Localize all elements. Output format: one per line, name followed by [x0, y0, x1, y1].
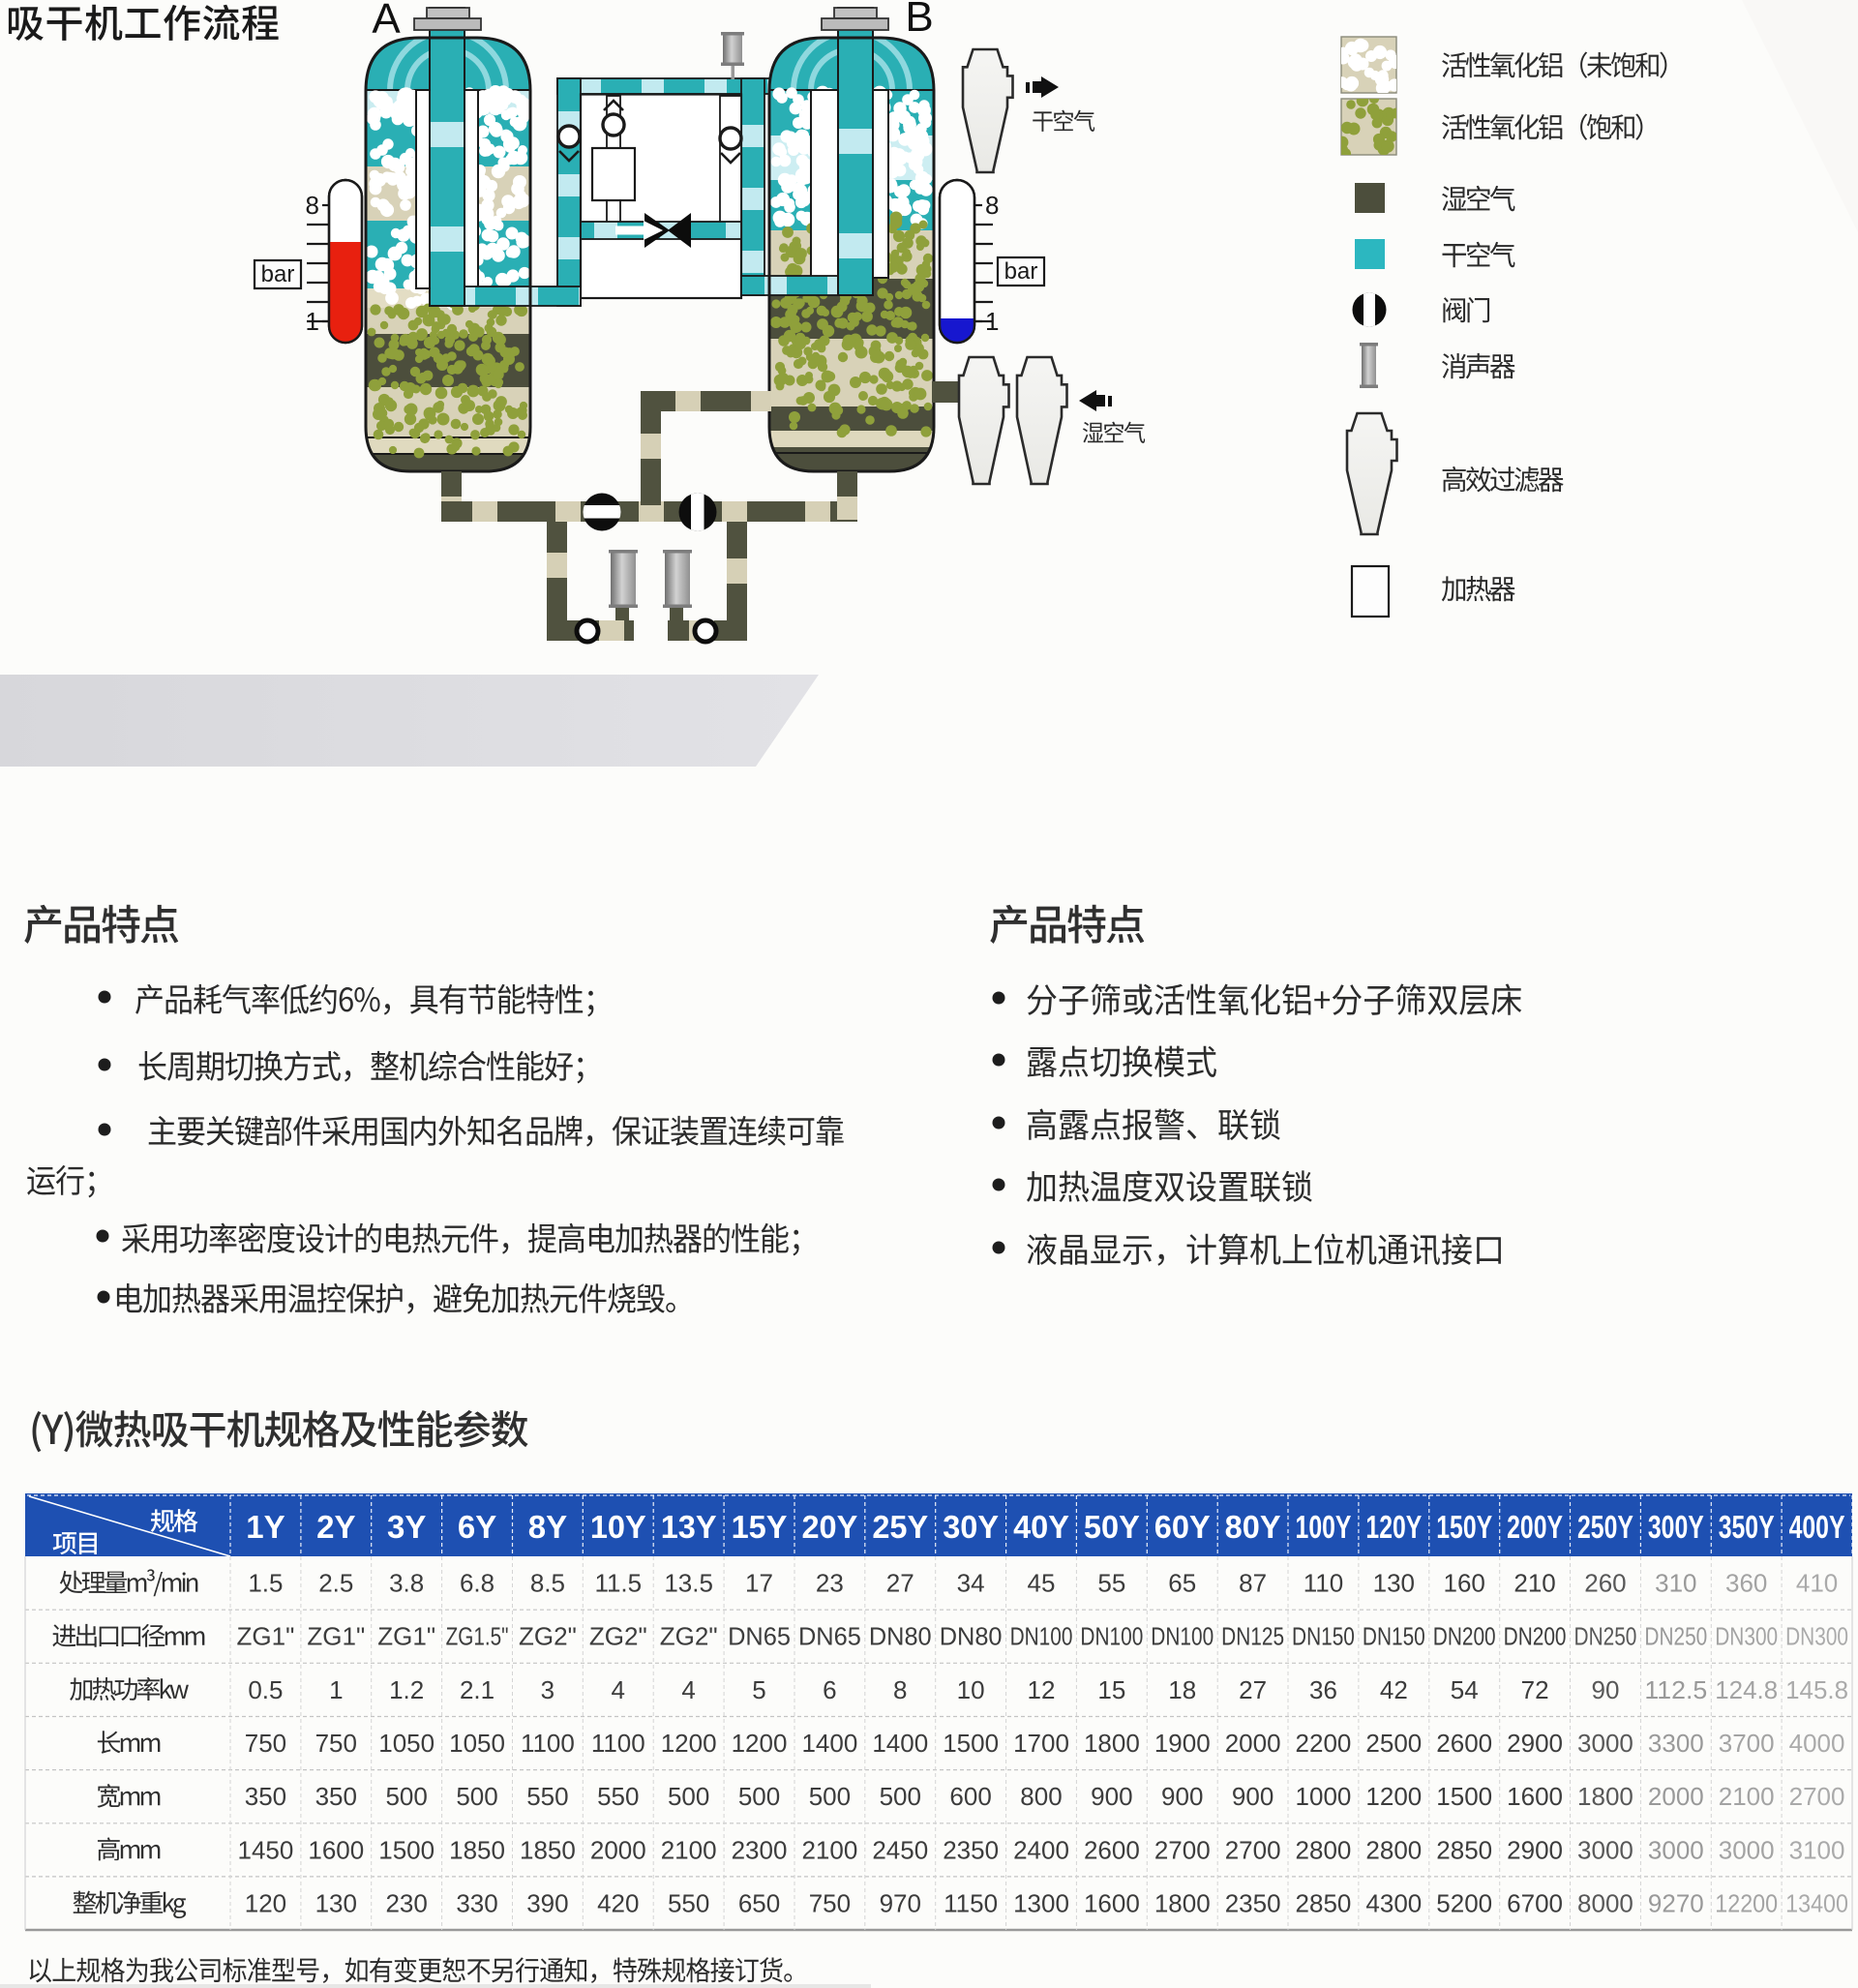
svg-text:3000: 3000 [1719, 1835, 1775, 1864]
svg-text:2600: 2600 [1084, 1835, 1140, 1864]
svg-text:60Y: 60Y [1154, 1509, 1211, 1545]
svg-text:1050: 1050 [378, 1729, 435, 1758]
svg-text:2.1: 2.1 [460, 1675, 494, 1704]
svg-text:DN200: DN200 [1504, 1622, 1567, 1651]
svg-text:2850: 2850 [1436, 1835, 1492, 1864]
svg-text:2800: 2800 [1296, 1835, 1352, 1864]
svg-text:5200: 5200 [1436, 1888, 1492, 1917]
svg-text:2900: 2900 [1507, 1729, 1563, 1758]
svg-text:6Y: 6Y [458, 1509, 496, 1545]
svg-text:DN250: DN250 [1644, 1622, 1707, 1651]
svg-text:2850: 2850 [1296, 1888, 1352, 1917]
svg-text:1900: 1900 [1154, 1729, 1211, 1758]
svg-text:bar: bar [1004, 258, 1038, 285]
svg-text:4300: 4300 [1365, 1888, 1422, 1917]
svg-text:ZG2": ZG2" [589, 1622, 647, 1651]
svg-text:DN100: DN100 [1080, 1622, 1143, 1651]
svg-text:310: 310 [1655, 1569, 1696, 1598]
svg-text:10: 10 [957, 1675, 985, 1704]
svg-text:1850: 1850 [520, 1835, 576, 1864]
svg-text:500: 500 [809, 1782, 851, 1811]
svg-text:1450: 1450 [238, 1835, 294, 1864]
svg-text:12: 12 [1028, 1675, 1056, 1704]
svg-text:50Y: 50Y [1084, 1509, 1140, 1545]
svg-text:500: 500 [668, 1782, 709, 1811]
svg-text:750: 750 [809, 1888, 851, 1917]
svg-text:1800: 1800 [1154, 1888, 1211, 1917]
svg-text:6.8: 6.8 [460, 1569, 494, 1598]
svg-text:4000: 4000 [1789, 1729, 1845, 1758]
svg-text:900: 900 [1091, 1782, 1132, 1811]
svg-text:2350: 2350 [943, 1835, 999, 1864]
svg-text:2100: 2100 [661, 1835, 717, 1864]
svg-text:1100: 1100 [591, 1729, 645, 1758]
svg-text:2.5: 2.5 [318, 1569, 353, 1598]
svg-text:5: 5 [752, 1675, 765, 1704]
svg-text:80Y: 80Y [1225, 1509, 1281, 1545]
svg-text:2500: 2500 [1365, 1729, 1422, 1758]
svg-text:2700: 2700 [1225, 1835, 1281, 1864]
svg-text:2800: 2800 [1365, 1835, 1422, 1864]
svg-text:1300: 1300 [1013, 1888, 1069, 1917]
svg-text:8Y: 8Y [528, 1509, 567, 1545]
svg-text:2450: 2450 [872, 1835, 928, 1864]
svg-text:550: 550 [526, 1782, 568, 1811]
svg-text:6: 6 [823, 1675, 836, 1704]
svg-text:DN100: DN100 [1151, 1622, 1214, 1651]
svg-text:DN250: DN250 [1574, 1622, 1637, 1651]
svg-text:2600: 2600 [1436, 1729, 1492, 1758]
svg-text:15: 15 [1097, 1675, 1125, 1704]
svg-text:160: 160 [1444, 1569, 1485, 1598]
svg-text:2000: 2000 [1225, 1729, 1281, 1758]
svg-text:130: 130 [1373, 1569, 1415, 1598]
svg-text:150Y: 150Y [1436, 1509, 1492, 1545]
svg-text:90: 90 [1591, 1675, 1619, 1704]
svg-text:1100: 1100 [521, 1729, 575, 1758]
svg-text:300Y: 300Y [1648, 1509, 1704, 1545]
svg-text:6700: 6700 [1507, 1888, 1563, 1917]
svg-text:3: 3 [541, 1675, 554, 1704]
svg-text:360: 360 [1725, 1569, 1767, 1598]
svg-text:DN80: DN80 [940, 1622, 1003, 1651]
svg-text:900: 900 [1161, 1782, 1203, 1811]
svg-text:1400: 1400 [872, 1729, 928, 1758]
svg-text:2900: 2900 [1507, 1835, 1563, 1864]
svg-text:350: 350 [315, 1782, 357, 1811]
svg-text:23: 23 [816, 1569, 844, 1598]
svg-text:1600: 1600 [1084, 1888, 1140, 1917]
svg-text:4: 4 [681, 1675, 695, 1704]
svg-text:20Y: 20Y [801, 1509, 857, 1545]
svg-text:420: 420 [597, 1888, 639, 1917]
svg-text:390: 390 [526, 1888, 568, 1917]
svg-text:3000: 3000 [1577, 1835, 1633, 1864]
svg-text:124.8: 124.8 [1715, 1675, 1778, 1704]
svg-text:500: 500 [385, 1782, 427, 1811]
svg-text:27: 27 [1239, 1675, 1267, 1704]
svg-text:11.5: 11.5 [594, 1569, 642, 1598]
svg-text:145.8: 145.8 [1785, 1675, 1848, 1704]
svg-text:2100: 2100 [801, 1835, 857, 1864]
svg-text:3000: 3000 [1648, 1835, 1704, 1864]
svg-text:2700: 2700 [1154, 1835, 1211, 1864]
svg-text:1: 1 [985, 307, 999, 336]
svg-text:55: 55 [1097, 1569, 1125, 1598]
svg-text:1800: 1800 [1577, 1782, 1633, 1811]
svg-text:15Y: 15Y [732, 1509, 788, 1545]
svg-text:1500: 1500 [943, 1729, 999, 1758]
svg-text:10Y: 10Y [590, 1509, 646, 1545]
svg-text:13.5: 13.5 [664, 1569, 713, 1598]
svg-text:A: A [372, 0, 401, 43]
svg-text:750: 750 [315, 1729, 357, 1758]
svg-text:1600: 1600 [308, 1835, 364, 1864]
svg-text:1800: 1800 [1084, 1729, 1140, 1758]
svg-text:1500: 1500 [1436, 1782, 1492, 1811]
svg-text:25Y: 25Y [872, 1509, 928, 1545]
svg-text:650: 650 [738, 1888, 780, 1917]
svg-text:1050: 1050 [449, 1729, 505, 1758]
svg-text:2Y: 2Y [316, 1509, 355, 1545]
svg-text:600: 600 [949, 1782, 991, 1811]
svg-text:DN150: DN150 [1363, 1622, 1425, 1651]
svg-text:1500: 1500 [378, 1835, 435, 1864]
svg-text:2700: 2700 [1789, 1782, 1845, 1811]
svg-text:3.8: 3.8 [389, 1569, 424, 1598]
svg-text:800: 800 [1020, 1782, 1062, 1811]
svg-text:500: 500 [738, 1782, 780, 1811]
svg-text:1200: 1200 [732, 1729, 788, 1758]
svg-text:3300: 3300 [1648, 1729, 1704, 1758]
svg-text:8: 8 [306, 191, 319, 220]
svg-text:1000: 1000 [1296, 1782, 1352, 1811]
svg-text:260: 260 [1584, 1569, 1626, 1598]
svg-text:DN300: DN300 [1715, 1622, 1778, 1651]
svg-text:B: B [905, 0, 933, 41]
svg-text:DN150: DN150 [1292, 1622, 1355, 1651]
svg-text:bar: bar [261, 261, 295, 287]
svg-text:17: 17 [745, 1569, 773, 1598]
svg-text:230: 230 [385, 1888, 427, 1917]
svg-text:34: 34 [957, 1569, 985, 1598]
svg-text:900: 900 [1232, 1782, 1274, 1811]
svg-text:130: 130 [315, 1888, 357, 1917]
svg-text:1.5: 1.5 [248, 1569, 283, 1598]
svg-text:ZG1": ZG1" [237, 1622, 295, 1651]
svg-text:87: 87 [1239, 1569, 1267, 1598]
svg-text:2400: 2400 [1013, 1835, 1069, 1864]
svg-text:3Y: 3Y [387, 1509, 426, 1545]
svg-text:9270: 9270 [1648, 1888, 1704, 1917]
svg-text:8: 8 [985, 191, 999, 220]
svg-text:36: 36 [1309, 1675, 1337, 1704]
svg-text:120Y: 120Y [1365, 1509, 1422, 1545]
svg-text:1600: 1600 [1507, 1782, 1563, 1811]
svg-text:330: 330 [456, 1888, 497, 1917]
svg-text:0.5: 0.5 [248, 1675, 283, 1704]
svg-text:4: 4 [612, 1675, 625, 1704]
svg-text:40Y: 40Y [1013, 1509, 1069, 1545]
svg-text:DN200: DN200 [1433, 1622, 1496, 1651]
svg-text:42: 42 [1380, 1675, 1408, 1704]
svg-text:970: 970 [880, 1888, 921, 1917]
svg-text:12200: 12200 [1715, 1888, 1778, 1917]
svg-text:ZG2": ZG2" [519, 1622, 577, 1651]
svg-text:ZG1": ZG1" [307, 1622, 365, 1651]
svg-text:2100: 2100 [1719, 1782, 1775, 1811]
svg-text:2200: 2200 [1296, 1729, 1352, 1758]
svg-text:72: 72 [1521, 1675, 1549, 1704]
svg-text:1: 1 [306, 307, 319, 336]
svg-text:1850: 1850 [449, 1835, 505, 1864]
svg-text:250Y: 250Y [1577, 1509, 1633, 1545]
svg-text:18: 18 [1168, 1675, 1196, 1704]
svg-text:1700: 1700 [1013, 1729, 1069, 1758]
svg-text:100Y: 100Y [1296, 1509, 1352, 1545]
svg-text:2000: 2000 [590, 1835, 646, 1864]
svg-text:DN300: DN300 [1785, 1622, 1848, 1651]
svg-text:54: 54 [1451, 1675, 1479, 1704]
svg-text:ZG1.5": ZG1.5" [446, 1622, 509, 1651]
svg-text:110: 110 [1304, 1569, 1343, 1598]
svg-text:550: 550 [597, 1782, 639, 1811]
svg-text:410: 410 [1796, 1569, 1838, 1598]
svg-text:120: 120 [245, 1888, 286, 1917]
svg-text:1200: 1200 [661, 1729, 717, 1758]
svg-text:200Y: 200Y [1507, 1509, 1563, 1545]
svg-text:ZG1": ZG1" [377, 1622, 435, 1651]
svg-text:13Y: 13Y [661, 1509, 717, 1545]
svg-text:DN65: DN65 [728, 1622, 791, 1651]
svg-text:30Y: 30Y [943, 1509, 999, 1545]
svg-text:1400: 1400 [801, 1729, 857, 1758]
svg-text:DN100: DN100 [1010, 1622, 1073, 1651]
svg-text:27: 27 [886, 1569, 914, 1598]
svg-text:350: 350 [245, 1782, 286, 1811]
svg-text:DN65: DN65 [798, 1622, 861, 1651]
svg-text:45: 45 [1028, 1569, 1056, 1598]
svg-text:1200: 1200 [1365, 1782, 1422, 1811]
svg-text:3700: 3700 [1719, 1729, 1775, 1758]
svg-text:13400: 13400 [1785, 1888, 1848, 1917]
svg-text:210: 210 [1513, 1569, 1555, 1598]
svg-text:500: 500 [456, 1782, 497, 1811]
svg-text:DN80: DN80 [869, 1622, 932, 1651]
svg-text:400Y: 400Y [1789, 1509, 1845, 1545]
svg-text:3000: 3000 [1577, 1729, 1633, 1758]
svg-text:1: 1 [329, 1675, 343, 1704]
svg-text:ZG2": ZG2" [660, 1622, 718, 1651]
svg-text:2300: 2300 [732, 1835, 788, 1864]
svg-text:750: 750 [245, 1729, 286, 1758]
svg-text:2350: 2350 [1225, 1888, 1281, 1917]
svg-text:8: 8 [893, 1675, 907, 1704]
svg-text:1150: 1150 [944, 1888, 998, 1917]
svg-text:3100: 3100 [1789, 1835, 1845, 1864]
svg-text:1.2: 1.2 [389, 1675, 424, 1704]
svg-text:112.5: 112.5 [1644, 1675, 1707, 1704]
svg-text:500: 500 [880, 1782, 921, 1811]
svg-text:2000: 2000 [1648, 1782, 1704, 1811]
svg-text:8.5: 8.5 [530, 1569, 565, 1598]
svg-text:550: 550 [668, 1888, 709, 1917]
svg-text:350Y: 350Y [1719, 1509, 1775, 1545]
svg-text:DN125: DN125 [1221, 1622, 1284, 1651]
svg-text:1Y: 1Y [246, 1509, 285, 1545]
svg-text:65: 65 [1168, 1569, 1196, 1598]
svg-text:8000: 8000 [1577, 1888, 1633, 1917]
